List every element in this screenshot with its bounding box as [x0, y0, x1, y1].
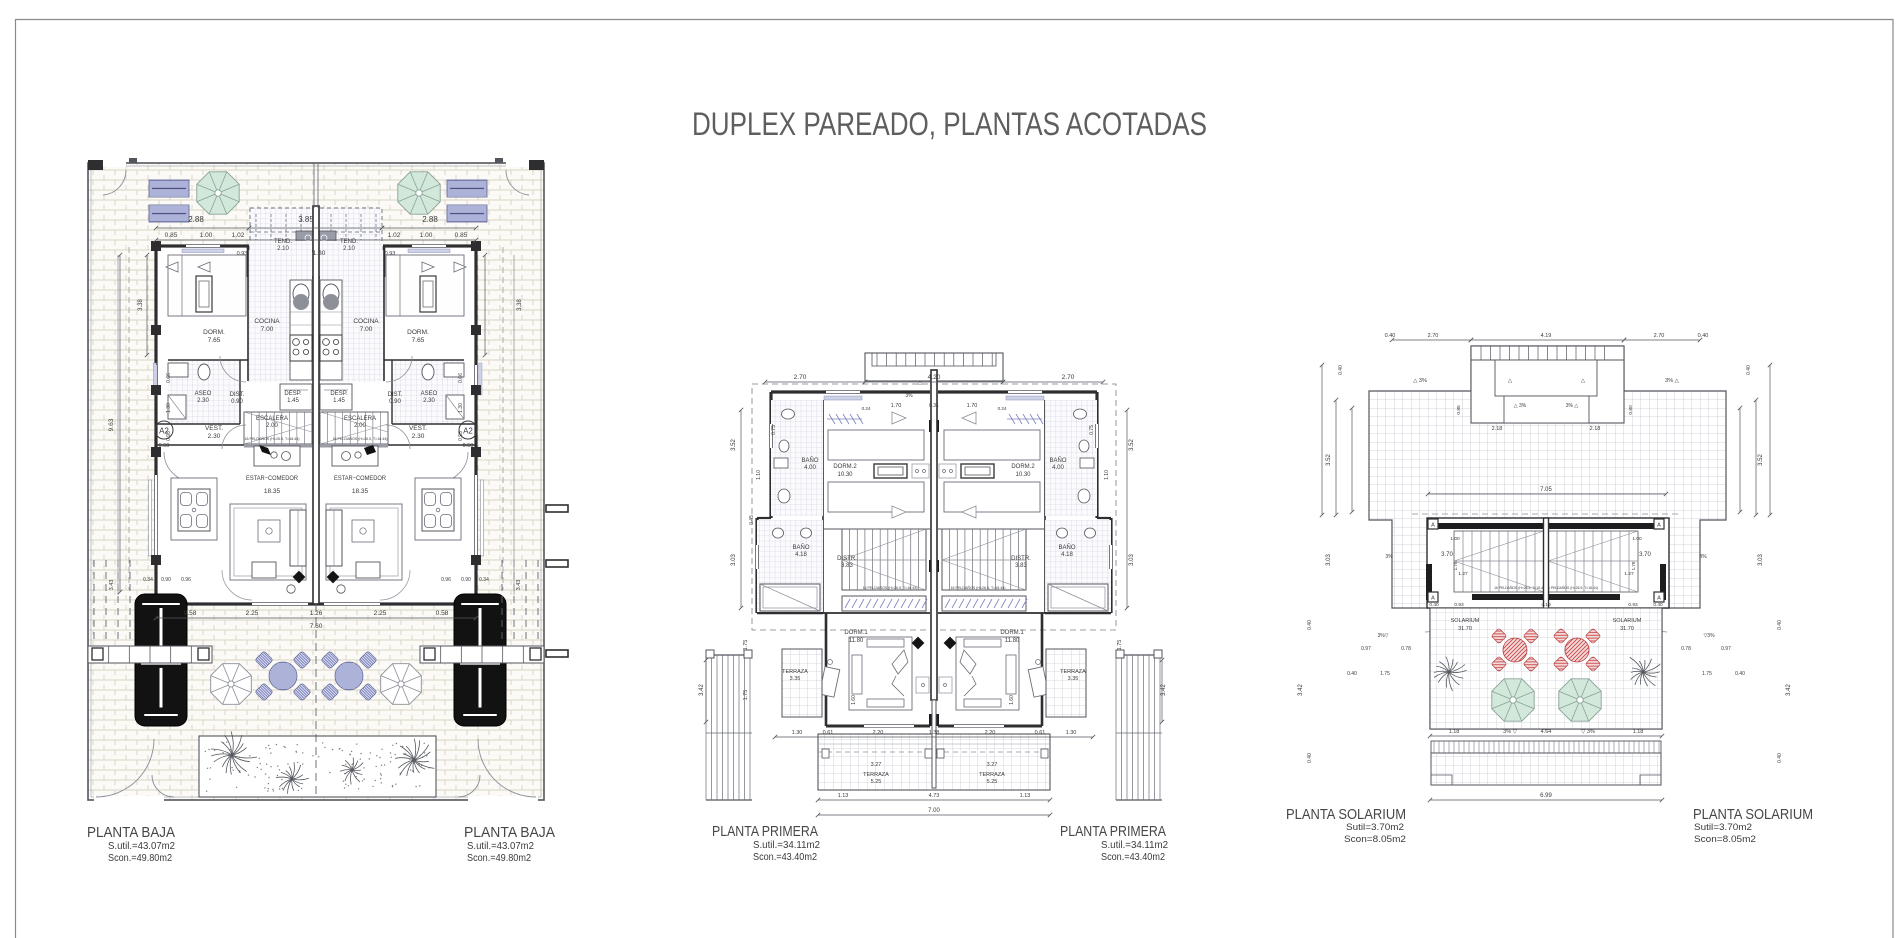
svg-text:2.00: 2.00 [354, 423, 366, 429]
svg-text:0.40: 0.40 [1338, 365, 1344, 375]
svg-text:0.75: 0.75 [1089, 425, 1095, 435]
svg-text:5.25: 5.25 [987, 779, 998, 785]
svg-text:1.60: 1.60 [1009, 695, 1015, 705]
svg-text:7.65: 7.65 [208, 337, 221, 344]
svg-text:COCINA: COCINA [254, 318, 280, 325]
svg-text:ASEO: ASEO [421, 391, 438, 397]
svg-text:3% △: 3% △ [1566, 403, 1579, 409]
svg-text:PLANTA SOLARIUM: PLANTA SOLARIUM [1286, 806, 1406, 823]
svg-text:0.93: 0.93 [1454, 602, 1464, 608]
svg-text:3.03: 3.03 [1129, 554, 1135, 566]
svg-text:SOLARIUM: SOLARIUM [1451, 618, 1480, 624]
svg-text:7.00: 7.00 [928, 808, 940, 814]
svg-text:0.24: 0.24 [862, 406, 871, 411]
svg-text:3.70: 3.70 [1441, 552, 1453, 558]
svg-text:PLANTA SOLARIUM: PLANTA SOLARIUM [1693, 806, 1813, 823]
svg-text:0.31: 0.31 [929, 403, 939, 409]
svg-text:Scon.=49.80m2: Scon.=49.80m2 [108, 853, 172, 864]
svg-text:1.45: 1.45 [333, 398, 345, 404]
svg-text:2.25: 2.25 [374, 610, 387, 617]
svg-text:4.64: 4.64 [1541, 729, 1552, 735]
svg-text:0.93: 0.93 [237, 251, 248, 257]
svg-text:10.30: 10.30 [837, 472, 853, 478]
svg-text:TEND.: TEND. [274, 239, 292, 245]
svg-text:TEND.: TEND. [340, 239, 358, 245]
svg-text:DORM.2: DORM.2 [1011, 464, 1035, 470]
svg-text:S.util.=43.07m2: S.util.=43.07m2 [108, 841, 175, 852]
svg-text:0.40: 0.40 [1385, 333, 1396, 339]
svg-text:DISTR.: DISTR. [837, 556, 857, 562]
svg-text:DORM.1: DORM.1 [1000, 630, 1024, 636]
svg-text:3.03: 3.03 [731, 554, 737, 566]
svg-text:DISTR.: DISTR. [1011, 556, 1031, 562]
svg-text:2.30: 2.30 [208, 433, 221, 440]
svg-text:0.75: 0.75 [771, 425, 777, 435]
svg-text:3.03: 3.03 [1758, 554, 1764, 566]
svg-text:3.52: 3.52 [1326, 454, 1332, 466]
svg-text:3.52: 3.52 [1129, 439, 1135, 451]
svg-text:3.03: 3.03 [1326, 554, 1332, 566]
svg-text:TERRAZA: TERRAZA [1060, 669, 1086, 675]
svg-text:▽ 3%: ▽ 3% [1581, 729, 1595, 735]
svg-text:PLANTA PRIMERA: PLANTA PRIMERA [1060, 823, 1166, 840]
svg-text:18 PELDAÑOS (H=26.5, T=18.44): 18 PELDAÑOS (H=26.5, T=18.44) [333, 436, 388, 441]
svg-text:Sutil=3.70m2: Sutil=3.70m2 [1346, 822, 1404, 833]
svg-text:3%▽: 3%▽ [1377, 633, 1388, 639]
svg-text:1.70: 1.70 [967, 403, 978, 409]
svg-text:3.83: 3.83 [841, 563, 853, 569]
svg-text:1.75: 1.75 [1117, 640, 1123, 651]
svg-text:7.05: 7.05 [1540, 487, 1552, 493]
svg-text:0.78: 0.78 [1681, 646, 1691, 652]
svg-text:Scon.=43.40m2: Scon.=43.40m2 [1101, 852, 1165, 863]
svg-text:4.00: 4.00 [804, 465, 816, 471]
svg-text:0.90: 0.90 [461, 577, 471, 583]
svg-text:0.85: 0.85 [1456, 405, 1462, 415]
svg-text:DESP.: DESP. [330, 391, 348, 397]
svg-text:3%: 3% [1385, 554, 1393, 560]
svg-text:0.40: 0.40 [1653, 602, 1663, 608]
svg-text:18.35: 18.35 [264, 488, 281, 495]
svg-text:ESCALERA: ESCALERA [256, 416, 288, 422]
svg-text:BAÑO: BAÑO [801, 457, 818, 464]
svg-text:4.18: 4.18 [795, 552, 807, 558]
svg-text:1.27: 1.27 [1458, 571, 1468, 577]
svg-text:A2: A2 [463, 427, 473, 436]
svg-text:ASEO: ASEO [195, 391, 212, 397]
svg-text:3%: 3% [1699, 554, 1707, 560]
svg-text:2.88: 2.88 [188, 215, 204, 224]
svg-text:7.65: 7.65 [412, 337, 425, 344]
svg-text:0.93: 0.93 [1628, 602, 1638, 608]
svg-text:3.43: 3.43 [516, 580, 522, 591]
svg-text:3.38: 3.38 [138, 299, 144, 311]
svg-text:A: A [1431, 523, 1435, 529]
svg-text:DORM.2: DORM.2 [833, 464, 857, 470]
svg-text:3.70: 3.70 [1639, 552, 1651, 558]
svg-text:1.18: 1.18 [1633, 729, 1644, 735]
svg-text:0.93: 0.93 [385, 251, 396, 257]
svg-text:3.35: 3.35 [1068, 676, 1079, 682]
svg-text:0.93: 0.93 [458, 431, 464, 441]
svg-text:S.util.=34.11m2: S.util.=34.11m2 [753, 840, 820, 851]
svg-text:3.52: 3.52 [731, 439, 737, 451]
svg-text:ESTAR−COMEDOR: ESTAR−COMEDOR [334, 475, 386, 482]
svg-text:3.85: 3.85 [298, 215, 314, 224]
svg-text:31.70: 31.70 [1458, 626, 1472, 632]
svg-text:2.18: 2.18 [1492, 426, 1503, 432]
svg-text:3% △: 3% △ [1665, 378, 1679, 384]
svg-text:1.00: 1.00 [1450, 536, 1460, 542]
svg-text:Sutil=3.70m2: Sutil=3.70m2 [1694, 822, 1752, 833]
svg-text:0.40: 0.40 [1307, 620, 1313, 630]
svg-text:1.02: 1.02 [388, 232, 401, 239]
svg-text:0.61: 0.61 [823, 730, 834, 736]
svg-text:5.25: 5.25 [871, 779, 882, 785]
svg-text:0.97: 0.97 [1361, 646, 1371, 652]
svg-text:2.10: 2.10 [277, 246, 289, 252]
svg-text:1.00: 1.00 [1632, 536, 1642, 542]
svg-text:3.27: 3.27 [871, 762, 882, 768]
svg-text:3.27: 3.27 [987, 762, 998, 768]
svg-text:S.util.=34.11m2: S.util.=34.11m2 [1101, 840, 1168, 851]
svg-text:BAÑO: BAÑO [1058, 544, 1075, 551]
svg-text:0.97: 0.97 [1721, 646, 1731, 652]
svg-text:BAÑO: BAÑO [792, 544, 809, 551]
svg-text:▽3%: ▽3% [1703, 633, 1715, 639]
svg-text:DORM.: DORM. [203, 329, 225, 336]
svg-text:1.80: 1.80 [313, 250, 326, 257]
svg-text:0.90: 0.90 [161, 577, 171, 583]
svg-text:2.30: 2.30 [197, 398, 209, 404]
svg-text:3% ▽: 3% ▽ [1503, 729, 1517, 735]
svg-text:1.30: 1.30 [1066, 730, 1077, 736]
svg-text:2.30: 2.30 [412, 433, 425, 440]
svg-text:0.66: 0.66 [458, 373, 464, 383]
svg-text:4.73: 4.73 [929, 793, 940, 799]
svg-text:0.96: 0.96 [181, 577, 191, 583]
svg-text:4.00: 4.00 [1052, 465, 1064, 471]
svg-text:0.93: 0.93 [166, 431, 172, 441]
svg-text:4.19: 4.19 [1541, 333, 1552, 339]
svg-text:0.34: 0.34 [143, 577, 153, 583]
svg-text:3.35: 3.35 [790, 676, 801, 682]
svg-text:16 PELDAÑOS (H=26.5, T=18.44): 16 PELDAÑOS (H=26.5, T=18.44) [1494, 585, 1546, 590]
svg-text:ESCALERA: ESCALERA [344, 416, 376, 422]
svg-text:1.75: 1.75 [743, 690, 749, 701]
svg-text:1.00: 1.00 [200, 232, 213, 239]
svg-text:1.70: 1.70 [891, 403, 902, 409]
svg-text:2.88: 2.88 [422, 215, 438, 224]
svg-text:11.80: 11.80 [849, 638, 864, 644]
svg-text:0.80: 0.80 [1628, 405, 1634, 415]
svg-text:1.00: 1.00 [420, 232, 433, 239]
svg-text:31.70: 31.70 [1620, 626, 1634, 632]
svg-text:0.40: 0.40 [1777, 753, 1783, 763]
svg-text:1.26: 1.26 [310, 610, 323, 617]
svg-text:1.60: 1.60 [851, 695, 857, 705]
svg-text:6.99: 6.99 [1540, 793, 1552, 799]
svg-text:2.10: 2.10 [343, 246, 355, 252]
svg-text:2.70: 2.70 [1428, 333, 1439, 339]
svg-text:7.00: 7.00 [360, 326, 373, 333]
svg-text:1.02: 1.02 [232, 232, 245, 239]
svg-text:16 PELDAÑOS (H=26.5, T=18.44): 16 PELDAÑOS (H=26.5, T=18.44) [951, 585, 1006, 590]
svg-text:SOLARIUM: SOLARIUM [1613, 618, 1642, 624]
svg-text:0.24: 0.24 [998, 406, 1007, 411]
svg-text:DORM.1: DORM.1 [844, 630, 868, 636]
svg-text:1.78: 1.78 [1453, 561, 1458, 570]
svg-text:COCINA: COCINA [353, 318, 379, 325]
svg-text:2.25: 2.25 [246, 610, 259, 617]
svg-text:3%: 3% [905, 393, 913, 399]
svg-text:2.70: 2.70 [1654, 333, 1665, 339]
svg-text:1.45: 1.45 [287, 398, 299, 404]
svg-text:3.52: 3.52 [1758, 454, 1764, 466]
svg-text:0.50: 0.50 [463, 443, 474, 449]
svg-text:DIST.: DIST. [230, 392, 245, 398]
svg-text:10.30: 10.30 [1015, 472, 1031, 478]
svg-text:0.66: 0.66 [166, 373, 172, 383]
svg-text:4.19: 4.19 [1541, 602, 1551, 608]
svg-text:16 PELDAÑOS (H=26.5, T=18.44): 16 PELDAÑOS (H=26.5, T=18.44) [1546, 585, 1598, 590]
svg-text:3.83: 3.83 [1015, 563, 1027, 569]
svg-text:16 PELDAÑOS (H=26.5, T=18.44): 16 PELDAÑOS (H=26.5, T=18.44) [863, 585, 918, 590]
svg-text:18.35: 18.35 [352, 488, 369, 495]
svg-text:2.00: 2.00 [266, 423, 278, 429]
svg-text:0.45: 0.45 [749, 515, 755, 525]
svg-text:7.60: 7.60 [310, 623, 323, 630]
svg-text:1.30: 1.30 [792, 730, 803, 736]
svg-text:0.40: 0.40 [1698, 333, 1709, 339]
svg-text:0.40: 0.40 [1307, 753, 1313, 763]
svg-text:4.18: 4.18 [1061, 552, 1073, 558]
svg-text:TERRAZA: TERRAZA [782, 669, 808, 675]
svg-text:2.20: 2.20 [985, 730, 996, 736]
svg-text:PLANTA PRIMERA: PLANTA PRIMERA [712, 823, 818, 840]
svg-text:1.75: 1.75 [1702, 671, 1712, 677]
svg-text:S.util.=43.07m2: S.util.=43.07m2 [467, 841, 534, 852]
svg-text:A: A [1657, 596, 1661, 602]
svg-text:1.38: 1.38 [929, 730, 940, 736]
svg-text:0.61: 0.61 [1035, 730, 1046, 736]
svg-text:TERRAZA: TERRAZA [979, 772, 1005, 778]
svg-text:Scon=8.05m2: Scon=8.05m2 [1344, 834, 1406, 845]
svg-text:0.50: 0.50 [159, 443, 170, 449]
svg-text:2.30: 2.30 [423, 398, 435, 404]
svg-text:A: A [1657, 523, 1661, 529]
svg-text:18 PELDAÑOS (H=26.5, T=18.44): 18 PELDAÑOS (H=26.5, T=18.44) [245, 436, 300, 441]
svg-text:3.42: 3.42 [699, 684, 705, 696]
svg-text:DIST.: DIST. [388, 392, 403, 398]
svg-text:0.96: 0.96 [441, 577, 451, 583]
svg-text:0.40: 0.40 [1777, 620, 1783, 630]
svg-text:1.10: 1.10 [1104, 470, 1110, 480]
svg-text:0.58: 0.58 [436, 610, 449, 617]
svg-text:0.40: 0.40 [1429, 602, 1439, 608]
svg-text:VEST.: VEST. [409, 425, 427, 432]
svg-text:3.43: 3.43 [109, 580, 115, 591]
svg-text:1.18: 1.18 [1449, 729, 1460, 735]
svg-text:2.20: 2.20 [873, 730, 884, 736]
svg-text:Scon=8.05m2: Scon=8.05m2 [1694, 834, 1756, 845]
svg-text:0.40: 0.40 [1746, 365, 1752, 375]
svg-text:4.20: 4.20 [928, 374, 941, 381]
svg-text:BAÑO: BAÑO [1049, 457, 1066, 464]
svg-text:1.75: 1.75 [743, 640, 749, 651]
svg-text:1.78: 1.78 [1631, 561, 1636, 570]
svg-text:ESTAR−COMEDOR: ESTAR−COMEDOR [246, 475, 298, 482]
svg-text:0.34: 0.34 [479, 577, 489, 583]
svg-text:1.13: 1.13 [838, 793, 849, 799]
svg-text:0.90: 0.90 [231, 399, 243, 405]
svg-text:0.85: 0.85 [455, 232, 468, 239]
svg-text:0.40: 0.40 [1347, 671, 1357, 677]
svg-text:7.00: 7.00 [261, 326, 274, 333]
svg-text:9.63: 9.63 [108, 418, 115, 431]
svg-text:VEST.: VEST. [205, 425, 223, 432]
svg-text:DUPLEX PAREADO, PLANTAS ACOTAD: DUPLEX PAREADO, PLANTAS ACOTADAS [692, 106, 1207, 142]
svg-text:2.18: 2.18 [1590, 426, 1601, 432]
svg-text:1.13: 1.13 [1020, 793, 1031, 799]
svg-text:0.40: 0.40 [1735, 671, 1745, 677]
svg-text:0.85: 0.85 [165, 232, 178, 239]
svg-text:Scon.=49.80m2: Scon.=49.80m2 [467, 853, 531, 864]
svg-text:1.27: 1.27 [1624, 571, 1634, 577]
svg-text:1.10: 1.10 [756, 470, 762, 480]
svg-text:0.58: 0.58 [184, 610, 197, 617]
svg-text:TERRAZA: TERRAZA [863, 772, 889, 778]
svg-text:2.70: 2.70 [1062, 374, 1075, 381]
svg-text:1.75: 1.75 [1380, 671, 1390, 677]
svg-text:DORM.: DORM. [407, 329, 429, 336]
svg-text:0.90: 0.90 [389, 399, 401, 405]
svg-text:11.80: 11.80 [1005, 638, 1020, 644]
svg-text:A: A [1431, 596, 1435, 602]
svg-text:3.42: 3.42 [1786, 684, 1792, 696]
svg-text:3.38: 3.38 [517, 299, 523, 311]
svg-text:1.30: 1.30 [166, 403, 172, 413]
svg-text:△ 3%: △ 3% [1413, 378, 1427, 384]
svg-text:DESP.: DESP. [284, 391, 302, 397]
svg-text:Scon.=43.40m2: Scon.=43.40m2 [753, 852, 817, 863]
svg-text:0.78: 0.78 [1401, 646, 1411, 652]
svg-text:PLANTA BAJA: PLANTA BAJA [464, 824, 555, 841]
svg-text:2.70: 2.70 [794, 374, 807, 381]
svg-text:1.30: 1.30 [458, 403, 464, 413]
svg-text:3.42: 3.42 [1298, 684, 1304, 696]
svg-text:△ 3%: △ 3% [1514, 403, 1527, 409]
svg-text:PLANTA BAJA: PLANTA BAJA [87, 824, 175, 841]
